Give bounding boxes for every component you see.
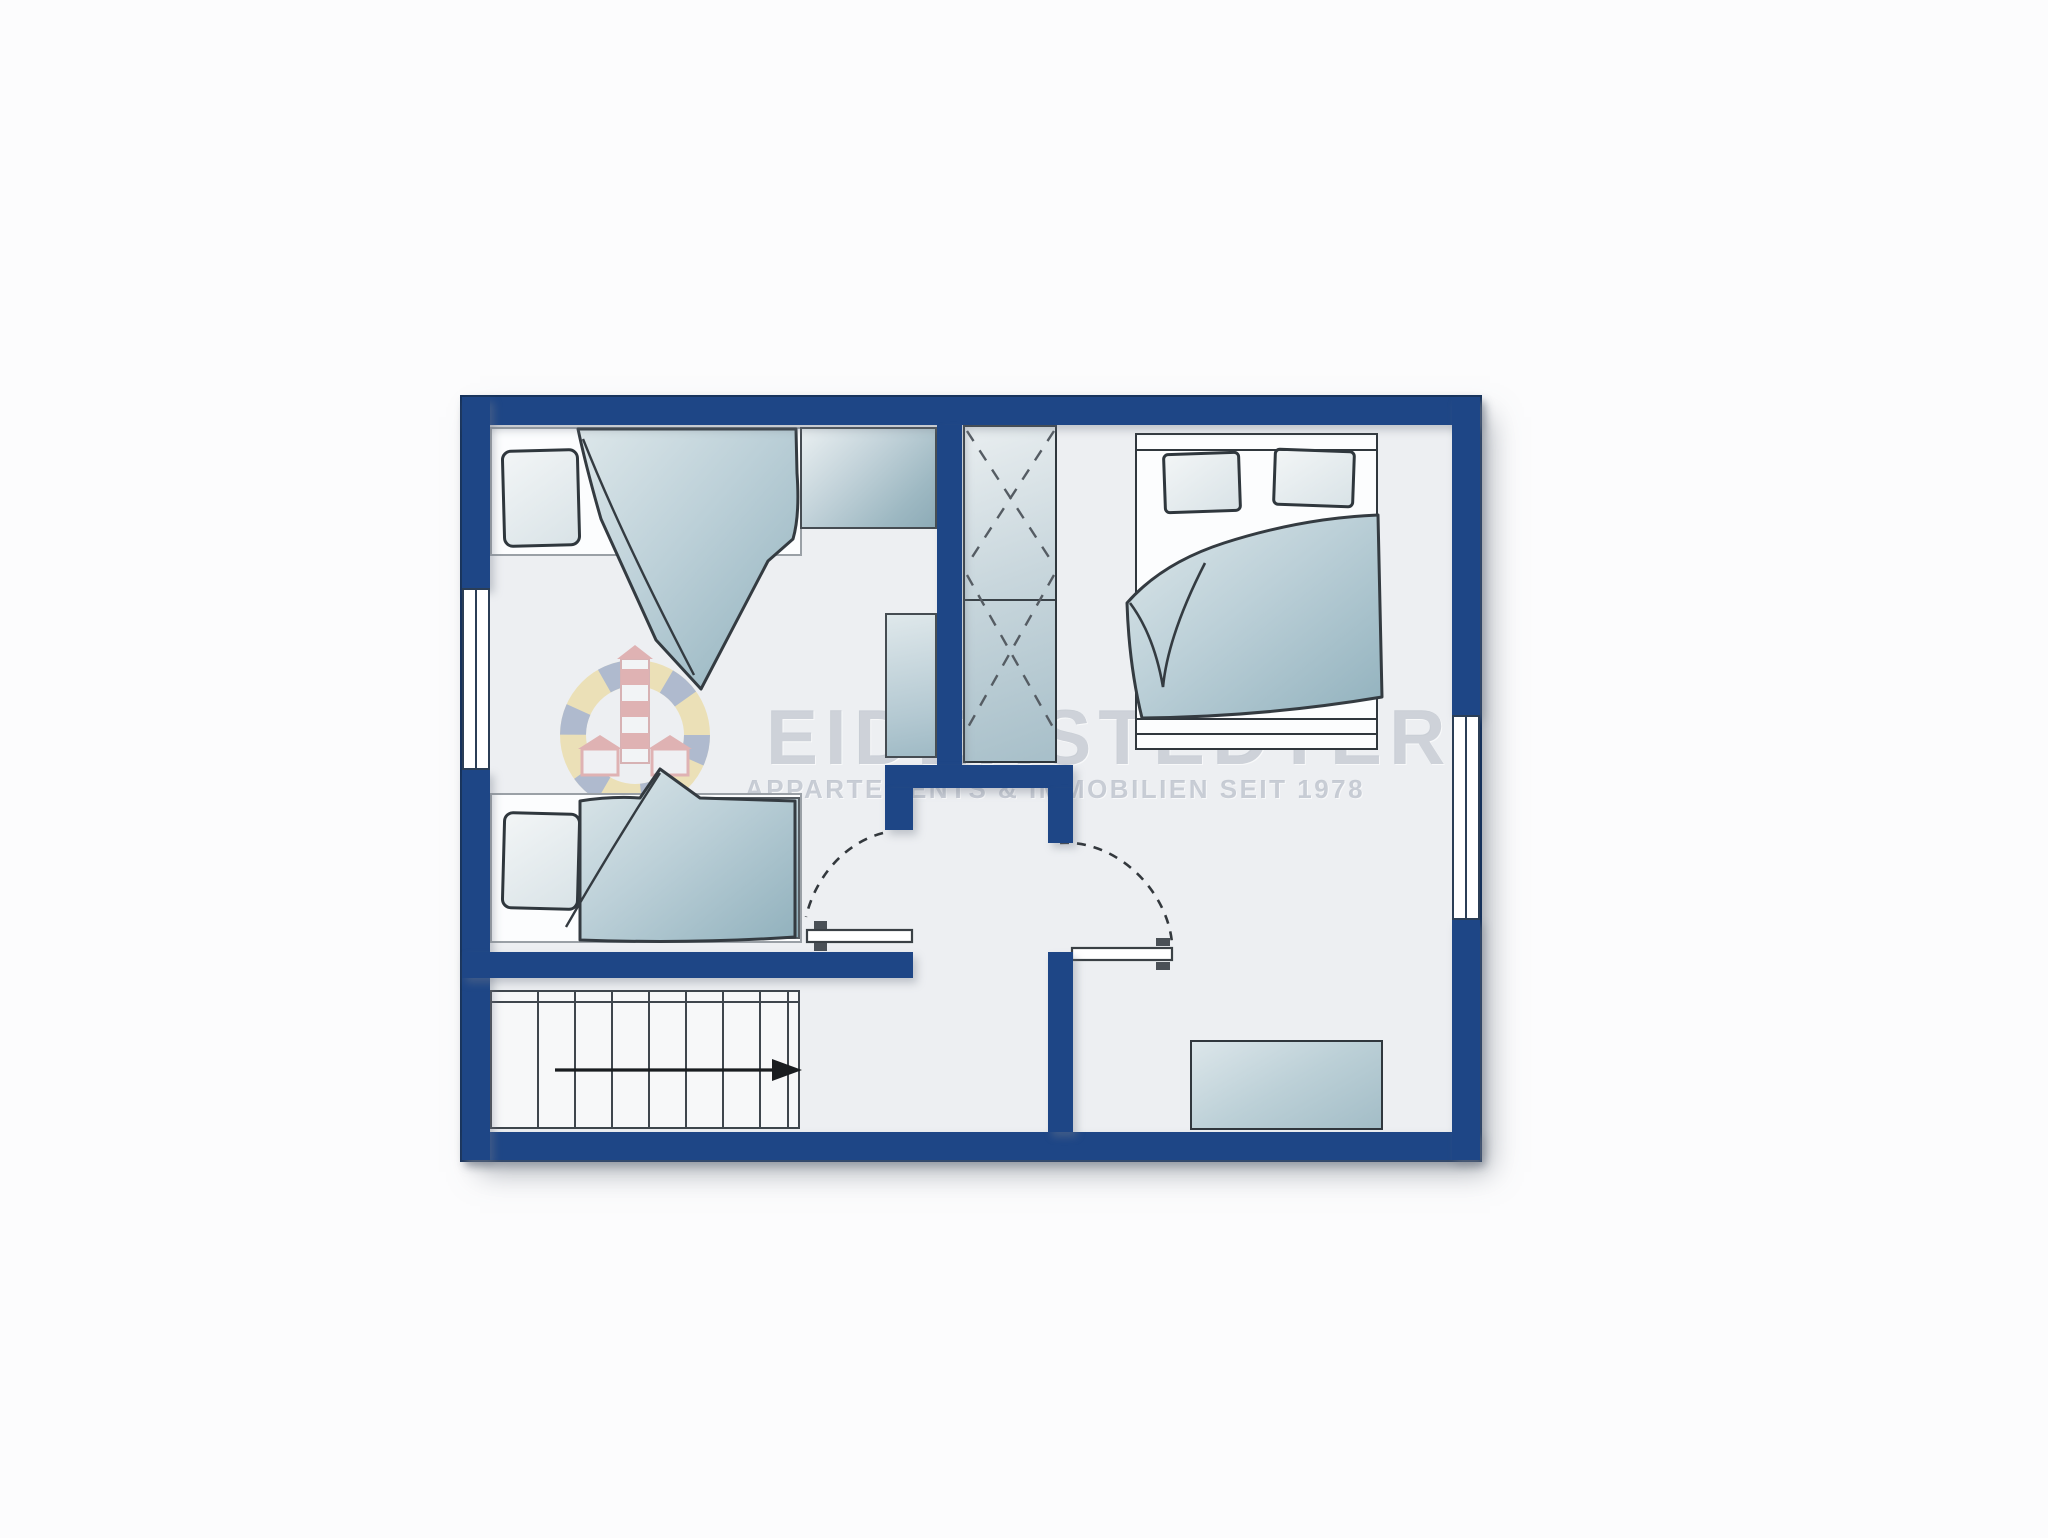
dresser <box>1190 1040 1383 1130</box>
wardrobe <box>963 425 1057 763</box>
wall-exterior-left <box>462 397 490 588</box>
single-bed-bottom-pillow <box>501 811 582 911</box>
double-bed-pillow-left <box>1162 451 1242 515</box>
single-bed-top-pillow <box>501 448 582 548</box>
double-bed-foot-line <box>1137 733 1376 735</box>
window-right-wall <box>1452 715 1480 920</box>
single-bed-top-foot-board <box>800 427 937 529</box>
stair-tread <box>722 992 724 1127</box>
wall-exterior-right <box>1452 397 1480 715</box>
stair-tread <box>574 992 576 1127</box>
hall-shelf <box>885 613 937 758</box>
staircase <box>490 990 800 1129</box>
wall-interior-stub-left <box>885 788 913 830</box>
double-bed-foot-line <box>1137 718 1376 720</box>
wall-exterior-right <box>1452 920 1480 1160</box>
wall-interior-stair-side <box>462 952 913 978</box>
window-pane-line <box>475 590 477 768</box>
wall-interior-closet-nook <box>885 765 1073 788</box>
building-outline: EIDERSTEDTER APPARTEMENTS & IMMOBILIEN S… <box>462 397 1480 1160</box>
wall-exterior-bottom <box>462 1132 1480 1160</box>
double-bed-pillow-right <box>1272 448 1356 509</box>
stair-tread <box>648 992 650 1127</box>
wardrobe-divider <box>965 599 1055 601</box>
wall-exterior-top <box>462 397 1480 425</box>
stair-edge <box>787 992 789 1127</box>
stair-tread <box>611 992 613 1127</box>
window-left-wall <box>462 588 490 770</box>
floor-plan-image: EIDERSTEDTER APPARTEMENTS & IMMOBILIEN S… <box>0 0 2048 1538</box>
window-pane-line <box>1465 717 1467 918</box>
stair-tread <box>537 992 539 1127</box>
wall-interior-hall-right <box>1048 952 1073 1132</box>
wall-interior-stub-right <box>1048 788 1073 843</box>
single-bed-bottom-foot-board <box>700 797 800 939</box>
stair-tread <box>685 992 687 1127</box>
wall-interior-central <box>937 425 962 765</box>
stair-tread <box>759 992 761 1127</box>
